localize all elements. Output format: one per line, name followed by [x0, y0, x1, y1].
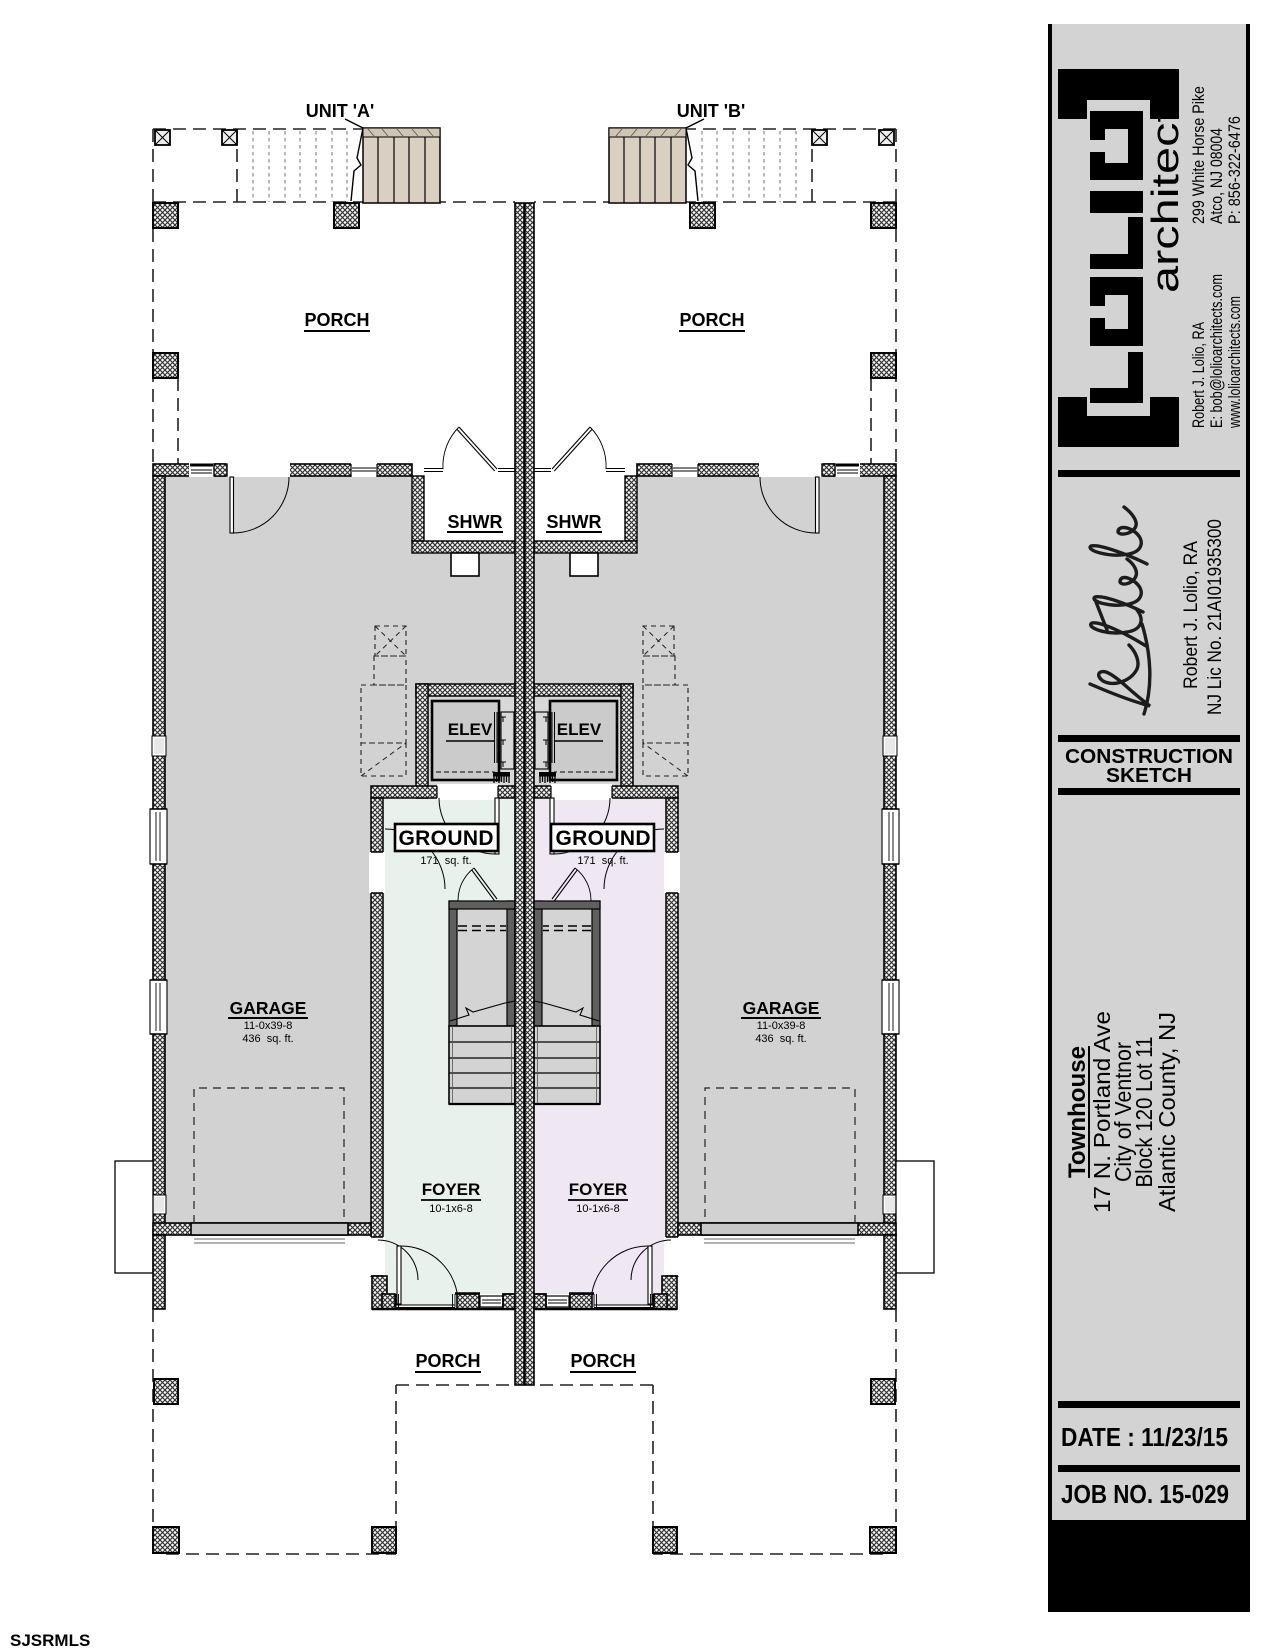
svg-text:E: bob@lolioarchitects.com: E: bob@lolioarchitects.com: [1208, 274, 1226, 428]
svg-text:GARAGE: GARAGE: [230, 998, 307, 1018]
svg-text:Townhouse: Townhouse: [1064, 1046, 1091, 1178]
svg-text:UNIT 'B': UNIT 'B': [677, 101, 746, 121]
svg-text:FOYER: FOYER: [569, 1180, 628, 1199]
svg-text:11-0x39-8: 11-0x39-8: [244, 1020, 293, 1032]
svg-text:10-1x6-8: 10-1x6-8: [576, 1203, 619, 1215]
svg-text:ELEV: ELEV: [448, 720, 493, 739]
svg-text:ELEV: ELEV: [557, 720, 602, 739]
svg-text:436 sq. ft.: 436 sq. ft.: [755, 1033, 806, 1045]
svg-text:UNIT 'A': UNIT 'A': [306, 101, 375, 121]
svg-text:171 sq. ft.: 171 sq. ft.: [577, 855, 628, 867]
svg-text:Atlantic County, NJ: Atlantic County, NJ: [1154, 1012, 1180, 1212]
svg-text:PORCH: PORCH: [304, 310, 369, 330]
svg-text:SHWR: SHWR: [448, 512, 503, 532]
svg-text:NJ Lic No. 21AI01935300: NJ Lic No. 21AI01935300: [1205, 519, 1226, 715]
svg-text:FOYER: FOYER: [422, 1180, 481, 1199]
svg-text:architect: architect: [1145, 108, 1187, 293]
svg-text:SKETCH: SKETCH: [1106, 765, 1192, 787]
svg-text:JOB NO. 15-029: JOB NO. 15-029: [1061, 1479, 1229, 1509]
svg-text:PORCH: PORCH: [415, 1351, 480, 1371]
svg-text:Robert J. Lolio, RA: Robert J. Lolio, RA: [1190, 322, 1208, 428]
svg-text:Atco, NJ 08004: Atco, NJ 08004: [1208, 128, 1226, 224]
svg-text:SJSRMLS: SJSRMLS: [10, 1631, 90, 1650]
svg-text:299 White Horse Pike: 299 White Horse Pike: [1190, 86, 1208, 224]
svg-text:SHWR: SHWR: [547, 512, 602, 532]
svg-text:DATE : 11/23/15: DATE : 11/23/15: [1061, 1422, 1228, 1452]
svg-text:GROUND: GROUND: [399, 827, 494, 850]
svg-text:PORCH: PORCH: [679, 310, 744, 330]
svg-text:PORCH: PORCH: [570, 1351, 635, 1371]
svg-text:11-0x39-8: 11-0x39-8: [757, 1020, 806, 1032]
svg-text:10-1x6-8: 10-1x6-8: [429, 1203, 472, 1215]
svg-text:436 sq. ft.: 436 sq. ft.: [242, 1033, 293, 1045]
svg-text:171 sq. ft.: 171 sq. ft.: [420, 855, 471, 867]
svg-text:P: 856-322-6476: P: 856-322-6476: [1226, 116, 1244, 224]
svg-text:GARAGE: GARAGE: [743, 998, 820, 1018]
svg-text:GROUND: GROUND: [556, 827, 651, 850]
svg-text:Robert J. Lolio, RA: Robert J. Lolio, RA: [1181, 541, 1202, 689]
svg-text:www.lolioarchitects.com: www.lolioarchitects.com: [1226, 296, 1244, 429]
